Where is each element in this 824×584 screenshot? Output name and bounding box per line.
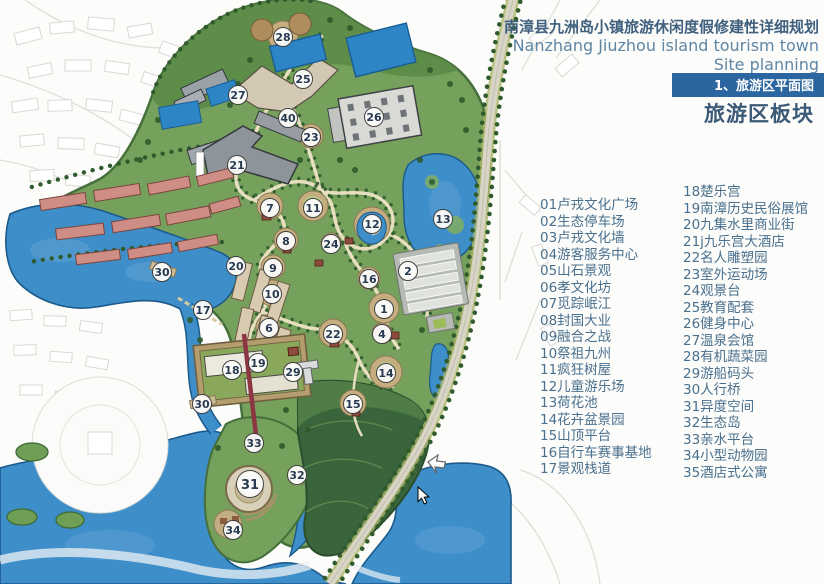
- svg-text:40: 40: [280, 112, 296, 125]
- svg-text:2: 2: [404, 265, 412, 278]
- hotel-sign: [196, 152, 204, 178]
- poi-marker-24: 24: [322, 235, 341, 254]
- poi-marker-2: 2: [399, 262, 418, 281]
- svg-text:7: 7: [266, 202, 274, 215]
- section-tab[interactable]: 1、旅游区平面图: [672, 73, 824, 97]
- poi-marker-34: 34: [224, 521, 243, 540]
- svg-text:30: 30: [194, 398, 210, 411]
- poi-marker-12: 12: [363, 215, 382, 234]
- svg-text:9: 9: [269, 262, 277, 275]
- poi-marker-20: 20: [227, 257, 246, 276]
- svg-text:31: 31: [241, 478, 259, 493]
- poi-marker-22: 22: [324, 325, 343, 344]
- svg-text:20: 20: [228, 260, 244, 273]
- svg-text:12: 12: [364, 218, 379, 231]
- poi-marker-14: 14: [377, 364, 396, 383]
- svg-text:25: 25: [295, 73, 310, 86]
- svg-text:8: 8: [282, 235, 290, 248]
- poi-marker-7: 7: [261, 199, 280, 218]
- poi-marker-11: 11: [304, 199, 323, 218]
- poi-marker-31: 31: [237, 471, 264, 498]
- poi-marker-32: 32: [288, 466, 307, 485]
- svg-text:26: 26: [366, 111, 382, 124]
- svg-text:16: 16: [361, 273, 377, 286]
- poi-marker-1: 1: [375, 300, 394, 319]
- poi-marker-13: 13: [434, 210, 453, 229]
- svg-text:28: 28: [275, 31, 290, 44]
- svg-text:15: 15: [345, 398, 360, 411]
- svg-text:34: 34: [225, 524, 241, 537]
- poi-marker-9: 9: [264, 259, 283, 278]
- poi-marker-10: 10: [263, 285, 282, 304]
- section-tab-label: 1、旅游区平面图: [714, 79, 814, 94]
- poi-marker-25: 25: [294, 70, 313, 89]
- svg-text:14: 14: [378, 367, 394, 380]
- svg-text:11: 11: [305, 202, 320, 215]
- svg-text:6: 6: [265, 322, 273, 335]
- svg-text:27: 27: [230, 89, 245, 102]
- svg-text:23: 23: [303, 131, 318, 144]
- svg-text:19: 19: [250, 357, 265, 370]
- svg-text:10: 10: [264, 288, 280, 301]
- poi-marker-6: 6: [260, 319, 279, 338]
- poi-marker-15: 15: [344, 395, 363, 414]
- svg-text:1: 1: [380, 303, 388, 316]
- poi-marker-29: 29: [284, 363, 303, 382]
- poi-marker-16: 16: [360, 270, 379, 289]
- svg-text:32: 32: [289, 469, 304, 482]
- sketch-village-cluster: [32, 377, 168, 513]
- poi-marker-28: 28: [274, 28, 293, 47]
- poi-marker-21: 21: [228, 156, 247, 175]
- svg-text:13: 13: [435, 213, 450, 226]
- poi-marker-26: 26: [365, 108, 384, 127]
- svg-text:21: 21: [229, 159, 244, 172]
- poi-marker-30: 30: [193, 395, 212, 414]
- poi-marker-8: 8: [277, 232, 296, 251]
- svg-text:22: 22: [325, 328, 340, 341]
- svg-text:18: 18: [224, 364, 239, 377]
- svg-text:33: 33: [246, 437, 261, 450]
- svg-text:17: 17: [195, 304, 210, 317]
- poi-marker-33: 33: [245, 434, 264, 453]
- poi-marker-4: 4: [373, 325, 392, 344]
- poi-marker-27: 27: [229, 86, 248, 105]
- page: 2825274026232171112138242092301610117622…: [0, 0, 824, 584]
- svg-text:29: 29: [285, 366, 300, 379]
- poi-marker-19: 19: [249, 354, 268, 373]
- poi-marker-18: 18: [223, 361, 242, 380]
- poi-marker-40: 40: [279, 109, 298, 128]
- svg-text:4: 4: [378, 328, 386, 341]
- svg-text:30: 30: [154, 266, 170, 279]
- poi-marker-23: 23: [302, 128, 321, 147]
- poi-marker-30: 30: [153, 263, 172, 282]
- poi-marker-17: 17: [194, 301, 213, 320]
- svg-text:24: 24: [323, 238, 339, 251]
